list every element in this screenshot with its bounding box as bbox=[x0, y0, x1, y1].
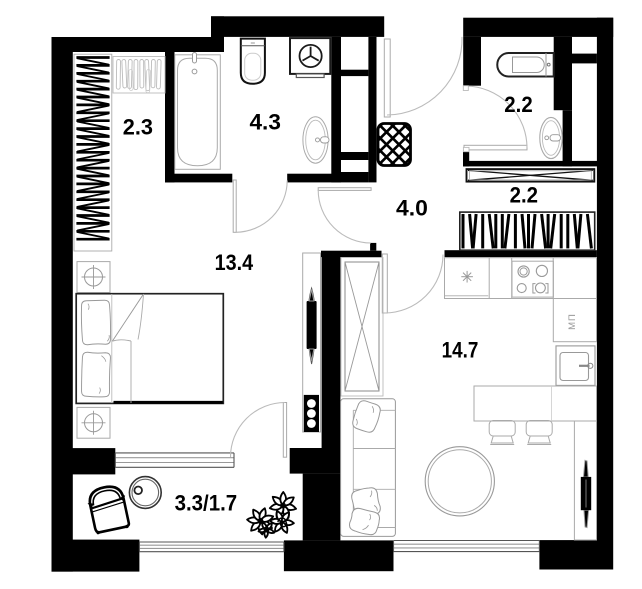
svg-text:14.7: 14.7 bbox=[442, 338, 479, 363]
svg-text:4.3: 4.3 bbox=[250, 110, 281, 135]
svg-text:2.3: 2.3 bbox=[123, 115, 153, 140]
svg-text:2.2: 2.2 bbox=[504, 92, 532, 117]
svg-text:2.2: 2.2 bbox=[510, 183, 538, 208]
svg-text:3.3/1.7: 3.3/1.7 bbox=[175, 491, 238, 516]
svg-text:13.4: 13.4 bbox=[215, 250, 254, 275]
svg-text:МП: МП bbox=[567, 313, 578, 330]
svg-text:4.0: 4.0 bbox=[396, 196, 428, 221]
